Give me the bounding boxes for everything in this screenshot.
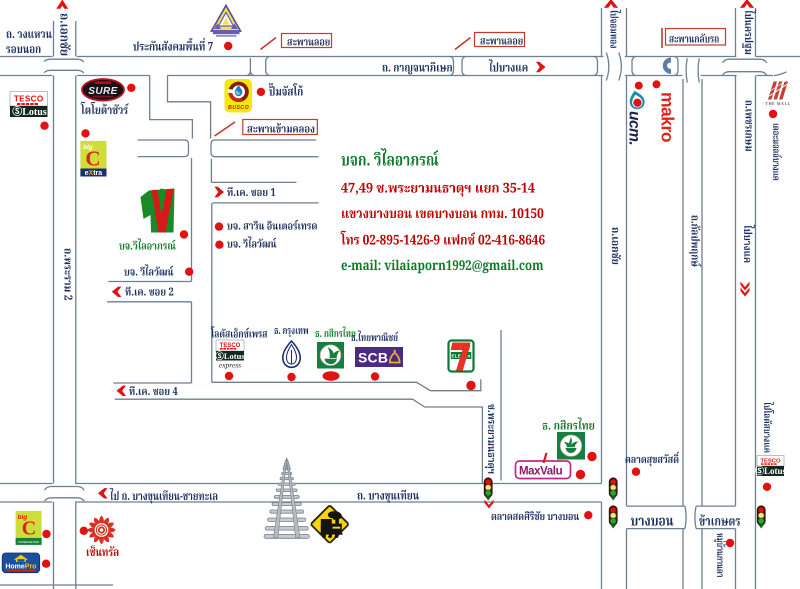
svg-text:SUPERCENTER: SUPERCENTER [18, 540, 39, 544]
svg-text:MaxValu: MaxValu [519, 466, 563, 478]
svg-text:TESCO: TESCO [14, 95, 44, 104]
svg-text:BUSCO: BUSCO [228, 105, 249, 111]
svg-text:SCB: SCB [358, 350, 388, 366]
svg-text:TESCO: TESCO [761, 458, 781, 464]
svg-text:TESCO: TESCO [220, 343, 241, 349]
svg-text:HomePro: HomePro [5, 563, 36, 570]
svg-text:SURE: SURE [88, 86, 117, 97]
svg-text:eXtra: eXtra [85, 170, 103, 177]
svg-text:THE MALL: THE MALL [765, 101, 790, 106]
svg-text:express: express [219, 361, 241, 370]
svg-text:ⓈLotus: ⓈLotus [755, 465, 787, 476]
svg-text:ⓈLotus: ⓈLotus [12, 105, 47, 118]
svg-text:ucm.: ucm. [626, 111, 643, 145]
svg-text:C: C [22, 518, 36, 540]
svg-text:makro: makro [658, 92, 678, 142]
svg-text:C: C [85, 147, 100, 171]
svg-text:ⓈLotus: ⓈLotus [215, 351, 245, 361]
